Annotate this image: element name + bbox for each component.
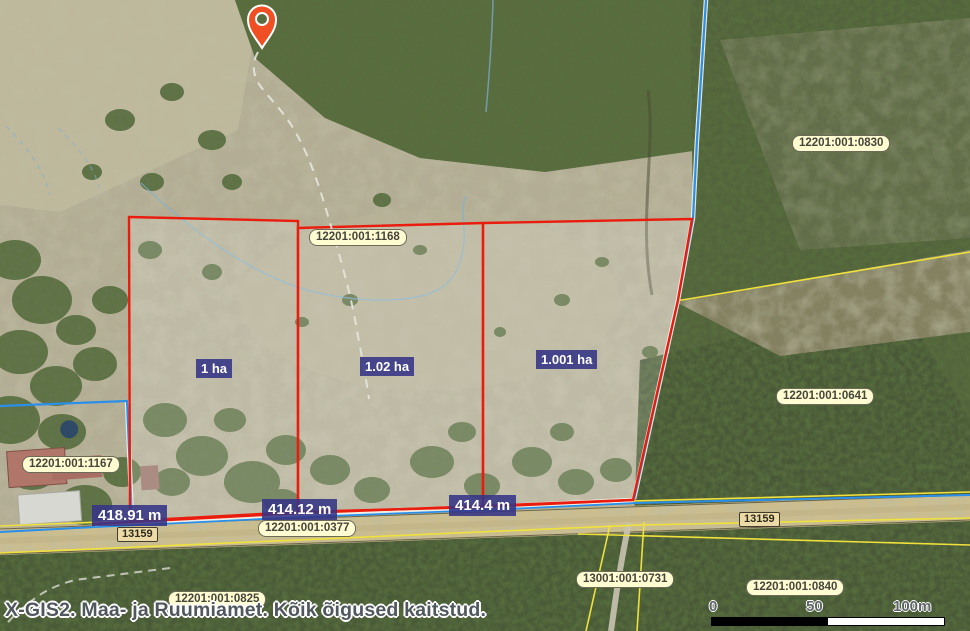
area-label-parcel-1: 1 ha: [196, 359, 232, 378]
measurement-label-1: 418.91 m: [92, 505, 167, 526]
cadastral-label-0731[interactable]: 13001:001:0731: [576, 571, 674, 588]
scale-tick-50: 50: [806, 598, 823, 615]
scale-bar: [711, 617, 945, 626]
road-number-left: 13159: [117, 527, 158, 542]
map-viewport[interactable]: 12201:001:0830 12201:001:1168 12201:001:…: [0, 0, 970, 631]
cadastral-label-0840[interactable]: 12201:001:0840: [746, 579, 844, 596]
cadastral-label-1167[interactable]: 12201:001:1167: [22, 456, 120, 473]
scale-bar-segment-light: [828, 618, 944, 625]
area-label-parcel-2: 1.02 ha: [360, 357, 414, 376]
measurement-label-3: 414.4 m: [449, 495, 516, 516]
cadastral-label-0830[interactable]: 12201:001:0830: [792, 135, 890, 152]
cadastral-label-0641[interactable]: 12201:001:0641: [776, 388, 874, 405]
road-number-right: 13159: [739, 512, 780, 527]
cadastral-label-0377[interactable]: 12201:001:0377: [258, 520, 356, 537]
measurement-label-2: 414.12 m: [262, 499, 337, 520]
scale-tick-0: 0: [709, 598, 717, 615]
scale-tick-100: 100m: [893, 598, 931, 615]
copyright-credit: X-GIS2. Maa- ja Ruumiamet. Kõik õigused …: [5, 599, 486, 622]
area-label-parcel-3: 1.001 ha: [536, 350, 597, 369]
cadastral-label-1168[interactable]: 12201:001:1168: [309, 229, 407, 246]
scale-bar-segment-dark: [712, 618, 828, 625]
